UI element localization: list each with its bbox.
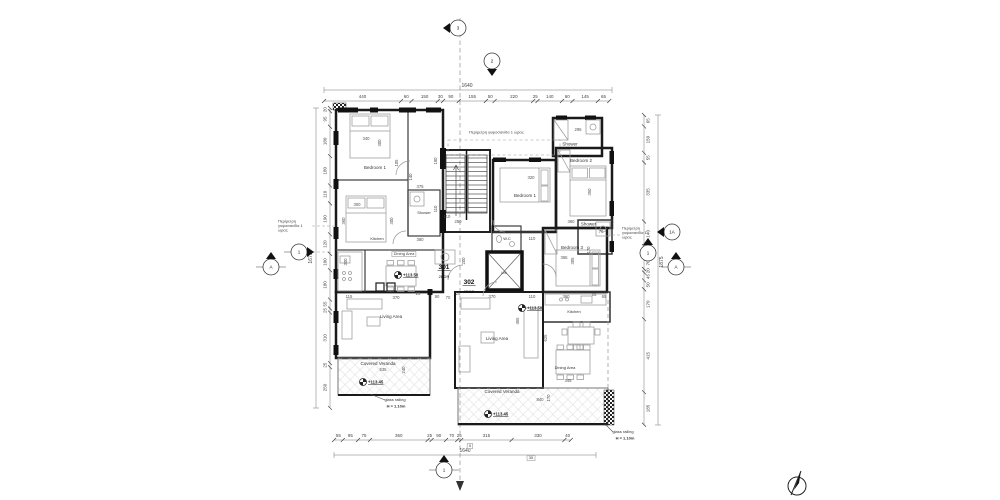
plan-dim-17: 110: [529, 236, 536, 241]
plan-dim-3: 180: [433, 157, 438, 165]
note-railing-right: glass railing: [612, 430, 633, 434]
plan-dim-10: 250: [454, 219, 462, 224]
chain-dim-left-8: 180: [323, 281, 328, 289]
chain-dim-bottom-4: 25: [427, 433, 433, 438]
plan-dim-2: 105: [394, 159, 399, 167]
section-marker-1A-4: 1A: [657, 224, 680, 240]
chain-dim-bottom-8: 315: [483, 433, 491, 438]
room-label-bedroom1-left: Bedroom 1: [364, 166, 386, 171]
section-marker-label: 1A: [669, 230, 675, 235]
plan-dim-33: 455: [515, 317, 520, 325]
section-marker-A-3: A: [256, 252, 286, 275]
chain-dim-right-11: 415: [646, 351, 651, 359]
plan-dim-11: 380: [416, 237, 424, 242]
chain-dim-left-11: 310: [323, 334, 328, 342]
chain-dim-top-4: 90: [448, 94, 454, 99]
chain-dim-right-10: 170: [646, 300, 651, 308]
note-fireproof-left: Περίμετρη γυψοσανίδα 1 ώρας: [278, 219, 311, 233]
plan-dim-1: 300: [377, 139, 382, 147]
chain-dim-bottom-10: 40: [565, 433, 571, 438]
section-marker-1-7: 1: [429, 455, 459, 478]
room-label-bedroom2-right: Bedroom 2: [570, 159, 592, 164]
plan-dim-0: 340: [362, 136, 370, 141]
plan-dim-31: 25: [592, 292, 597, 297]
plan-dim-41: 110: [444, 214, 451, 219]
level-value-living-left: +113.50: [403, 272, 418, 278]
chain-dim-left-5: 190: [323, 215, 328, 223]
chain-dim-right-12: 185: [646, 404, 651, 412]
plan-dim-18: 365: [560, 255, 568, 260]
level-value-veranda-left: +113.45: [368, 379, 383, 385]
chain-dim-right-2: 55: [646, 155, 651, 161]
section-marker-2-1: 2: [484, 53, 500, 76]
chain-dim-top-5: 155: [469, 94, 477, 99]
room-label-veranda-left: Covered Veranda: [360, 362, 395, 367]
chain-dim-left-13: 250: [323, 383, 328, 391]
chain-dim-right-3: 335: [646, 188, 651, 196]
section-marker-A-6: A: [661, 252, 691, 275]
plan-dim-13: 295: [574, 127, 582, 132]
note-line: ώρας: [278, 228, 311, 233]
chain-dim-right-0: 65: [646, 118, 651, 124]
plan-dim-7: 375: [416, 184, 424, 189]
note-railing-left: glass railing: [384, 398, 405, 402]
section-marker-label: A: [674, 265, 677, 270]
chain-dim-bottom-6: 70: [449, 433, 455, 438]
plan-dim-16: 360: [567, 219, 575, 224]
plan-dim-15: 350: [587, 188, 592, 196]
overall-dim-top: 1640: [461, 83, 472, 89]
chain-dim-bottom-3: 360: [395, 433, 403, 438]
chain-dim-left-7: 100: [323, 258, 328, 266]
plan-dim-25: 90: [435, 294, 440, 299]
chain-dim-left-12: 25: [323, 362, 328, 368]
level-value-living-right: +113.50: [527, 305, 542, 311]
chain-dim-bottom-9: 330: [534, 433, 542, 438]
plan-linework: 1640 1640 1675 1875 44060150309015550220…: [0, 0, 1000, 500]
plan-dim-20: 70: [599, 229, 604, 234]
room-label-shower-top-right: Shower: [562, 142, 577, 147]
plan-dim-32: 65: [602, 294, 607, 299]
chain-dim-left-6: 120: [323, 240, 328, 248]
plan-dim-5: 360: [341, 217, 346, 225]
plan-dim-34: 625: [543, 334, 548, 342]
section-marker-3-0: 3: [443, 20, 466, 36]
overall-dim-bottom: 1640: [459, 448, 470, 454]
plan-dim-40: 200: [461, 257, 466, 265]
unit-type-302: 2BDR: [464, 290, 475, 295]
level-value-veranda-right: +113.45: [493, 411, 508, 417]
overall-dim-right: 1875: [659, 256, 665, 267]
room-label-dining-right: Dining Area: [555, 366, 576, 370]
unit-type-301: 2BDR: [439, 275, 450, 280]
plan-dim-23: 370: [392, 295, 400, 300]
note-line: ώρας: [622, 235, 655, 240]
chain-dim-left-1: 95: [323, 116, 328, 122]
north-arrow-icon: [788, 471, 806, 495]
chain-dim-top-7: 220: [510, 94, 518, 99]
chain-dim-left-2: 180: [323, 137, 328, 145]
chain-dim-right-7: 20: [646, 268, 651, 274]
plan-dim-24: 25: [416, 291, 421, 296]
chain-dim-left-9: 55: [323, 301, 328, 307]
room-label-living-left: Living Area: [380, 315, 402, 320]
unit-number-301: 301: [438, 263, 451, 271]
drawing-world: 1640 1640 1675 1875 44060150309015550220…: [0, 0, 1000, 500]
plan-dim-28: 370: [488, 294, 496, 299]
chain-dim-top-9: 140: [546, 94, 554, 99]
plan-dim-35: 535: [379, 367, 387, 372]
section-marker-1-5: 1: [640, 238, 656, 261]
plan-dim-27: 25: [456, 291, 461, 296]
chain-dim-top-11: 145: [581, 94, 589, 99]
chain-dim-right-1: 150: [646, 135, 651, 143]
plan-dim-37: 840: [536, 397, 544, 402]
plan-dim-21: 170: [586, 246, 591, 254]
plan-dim-8: 140: [408, 173, 413, 181]
room-label-bedroom3-right: Bedroom 3: [561, 246, 583, 251]
chain-dim-left-4: 110: [323, 190, 328, 198]
section-marker-label: A: [269, 265, 272, 270]
plan-dim-39: 345: [564, 378, 572, 383]
boxed-dim-5: 5: [467, 443, 473, 448]
chain-dim-bottom-7: 25: [457, 433, 463, 438]
chain-dim-bottom-1: 95: [348, 433, 354, 438]
chain-dim-right-8: 45: [646, 273, 651, 279]
chain-dim-top-3: 30: [438, 94, 444, 99]
room-label-kitchen-left: Kitchen: [370, 237, 383, 241]
plan-dim-36: 240: [401, 366, 406, 374]
room-label-shower-left: Shower: [417, 211, 431, 215]
room-label-lift: Lift: [501, 271, 506, 275]
note-fireproof-right: Περίμετρη γυψοσανίδα 1 ώρας: [622, 226, 655, 240]
room-label-kitchen-right: Kitchen: [567, 310, 580, 314]
room-label-living-right: Living Area: [486, 337, 508, 342]
chain-dim-top-2: 150: [421, 94, 429, 99]
plan-dim-30: 360: [562, 294, 570, 299]
note-railing-h-left: H = 1.10m: [387, 404, 406, 408]
plan-dim-6: 300: [389, 217, 394, 225]
chain-dim-top-12: 65: [601, 94, 607, 99]
floor-plan-sheet: 1640 1640 1675 1875 44060150309015550220…: [0, 0, 1000, 500]
level-symbol-icon: [519, 305, 526, 312]
chain-dim-left-0: 20: [323, 107, 328, 113]
level-symbol-icon: [360, 379, 367, 386]
room-label-shower2-right: Shower: [581, 222, 596, 227]
plan-dim-38: 170: [546, 394, 551, 402]
chain-dim-left-3: 180: [323, 167, 328, 175]
chain-dim-bottom-5: 90: [436, 433, 442, 438]
room-label-wc: W.C: [503, 237, 511, 241]
chain-dim-top-8: 25: [533, 94, 539, 99]
level-symbol-icon: [485, 411, 492, 418]
plan-dim-26: 70: [446, 295, 451, 300]
plan-dim-19: 305: [570, 257, 575, 265]
plan-dim-9: 110: [433, 205, 438, 212]
plan-dim-12: 300: [343, 258, 348, 266]
staircase: [446, 150, 487, 220]
chain-dim-top-0: 440: [359, 94, 367, 99]
plan-dim-22: 115: [346, 294, 353, 299]
level-symbol-icon: [395, 272, 402, 279]
unit-label-301: 301 2BDR: [438, 263, 451, 281]
chain-dim-top-6: 50: [488, 94, 494, 99]
room-label-dining-left: Dining Area: [392, 251, 417, 256]
unit-label-302: 302 2BDR: [463, 278, 476, 296]
chain-dim-top-10: 60: [565, 94, 571, 99]
chain-dim-top-1: 60: [404, 94, 410, 99]
chain-dim-bottom-0: 55: [336, 433, 342, 438]
room-label-bedroom1-right: Bedroom 1: [514, 194, 536, 199]
boxed-dim-35: 35: [527, 455, 535, 460]
plan-dim-29: 110: [529, 294, 536, 299]
note-fireproof-top: Περίμετρη γυψοσανίδα 1 ώρας: [469, 130, 524, 135]
chain-dim-left-10: 25: [323, 308, 328, 314]
room-label-veranda-right: Covered Veranda: [484, 390, 519, 395]
chain-dim-right-9: 50: [646, 282, 651, 288]
chain-dim-bottom-2: 75: [361, 433, 367, 438]
unit-number-302: 302: [463, 278, 476, 286]
note-railing-h-right: H = 1.10m: [616, 436, 635, 440]
plan-dim-4: 300: [353, 202, 361, 207]
plan-dim-14: 320: [527, 175, 535, 180]
